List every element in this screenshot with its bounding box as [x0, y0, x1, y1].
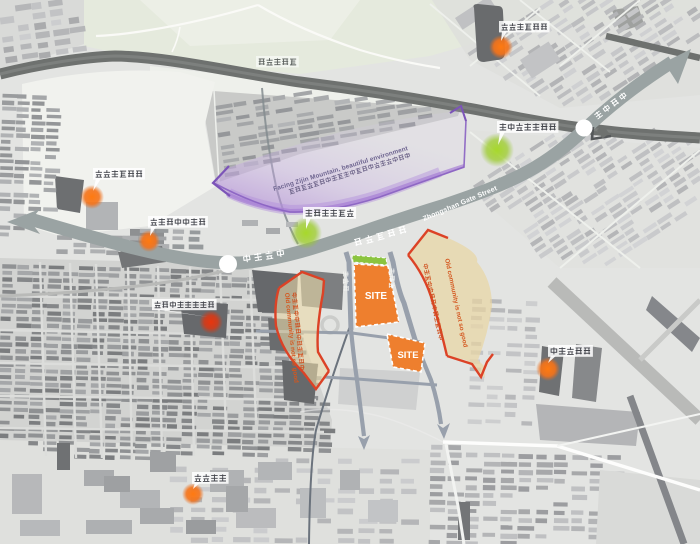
svg-text:SITE: SITE	[397, 350, 418, 361]
svg-text:SITE: SITE	[365, 291, 388, 302]
